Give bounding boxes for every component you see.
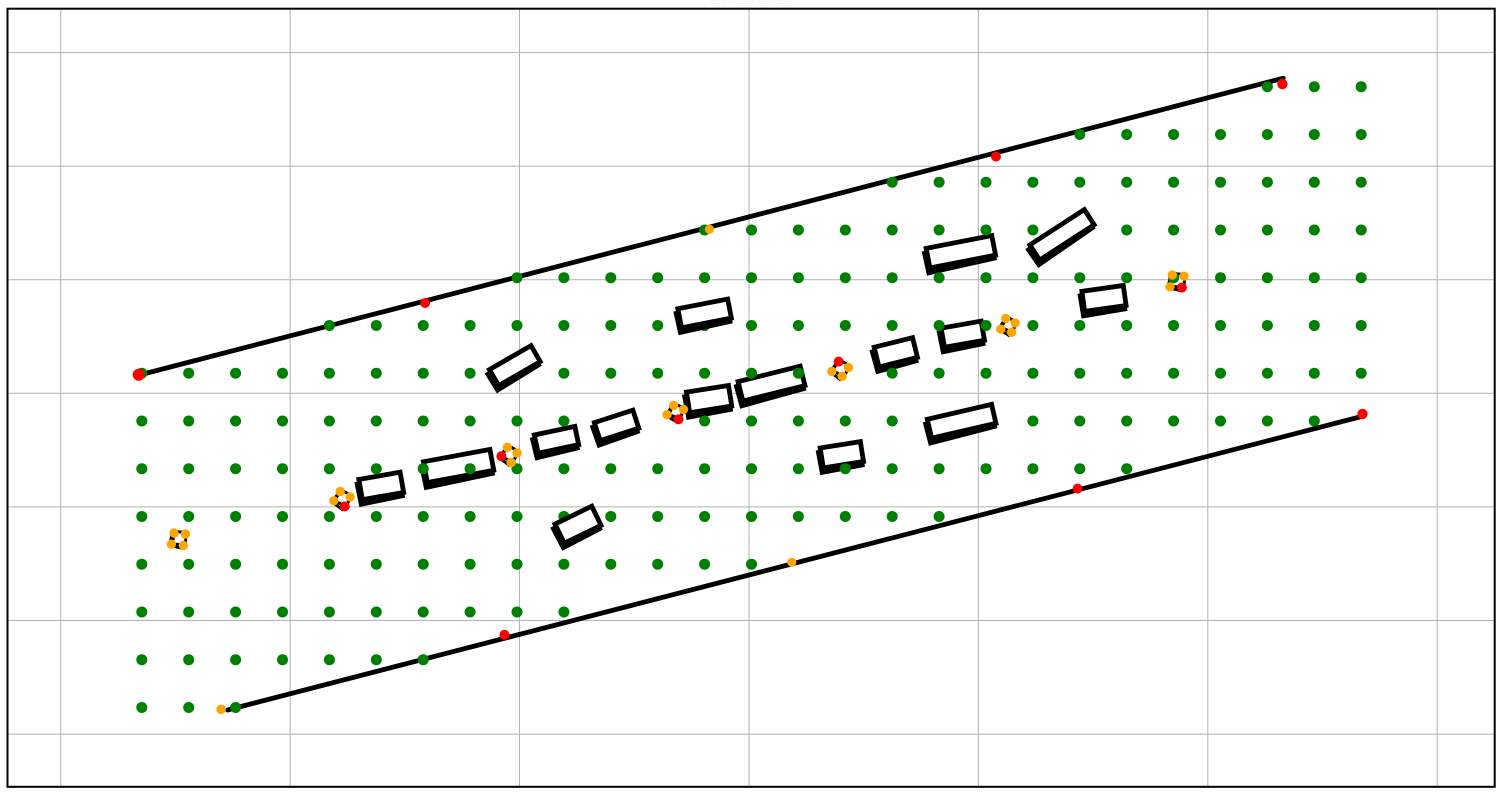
svg-text:scenario rollout: scenario rollout <box>709 0 791 7</box>
